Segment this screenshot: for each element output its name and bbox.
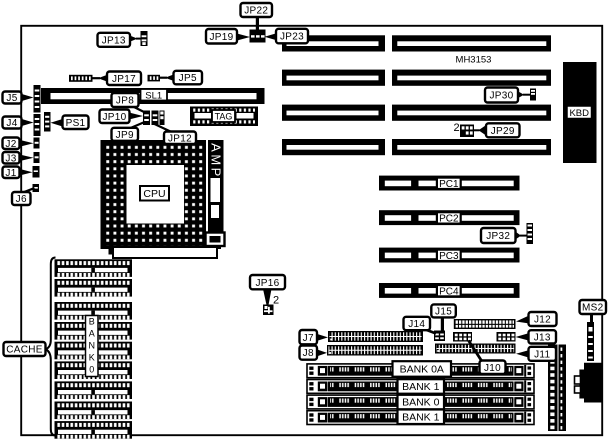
svg-text:0: 0	[89, 365, 94, 375]
svg-text:J10: J10	[484, 363, 501, 374]
svg-text:J5: J5	[6, 93, 17, 104]
svg-text:PS1: PS1	[66, 118, 86, 129]
svg-text:MH3153: MH3153	[456, 55, 492, 66]
svg-text:J14: J14	[408, 319, 425, 330]
svg-text:J2: J2	[5, 139, 16, 150]
svg-text:BANK 0: BANK 0	[402, 397, 440, 409]
svg-text:CPU: CPU	[143, 188, 165, 200]
svg-text:AMP: AMP	[209, 143, 224, 179]
svg-text:J7: J7	[303, 333, 314, 344]
svg-text:PC1: PC1	[439, 179, 459, 190]
svg-text:K: K	[89, 353, 95, 363]
svg-text:JP30: JP30	[490, 91, 514, 102]
svg-text:MS2: MS2	[582, 303, 604, 314]
svg-text:JP17: JP17	[112, 74, 136, 85]
svg-text:JP12: JP12	[168, 133, 192, 144]
svg-text:BANK 1: BANK 1	[402, 411, 440, 423]
svg-text:JP10: JP10	[103, 112, 127, 123]
svg-text:JP16: JP16	[256, 278, 280, 289]
svg-text:J3: J3	[5, 153, 16, 164]
svg-text:JP32: JP32	[486, 231, 510, 242]
svg-text:J12: J12	[534, 315, 551, 326]
svg-text:BANK 0A: BANK 0A	[400, 364, 444, 376]
svg-text:J15: J15	[435, 307, 452, 318]
svg-text:J1: J1	[5, 168, 16, 179]
svg-text:2: 2	[273, 295, 279, 307]
svg-text:2: 2	[453, 122, 459, 134]
svg-text:SL1: SL1	[145, 90, 162, 101]
svg-text:TAG: TAG	[215, 112, 233, 122]
svg-text:JP19: JP19	[210, 32, 234, 43]
svg-text:JP22: JP22	[244, 6, 268, 17]
svg-text:JP29: JP29	[491, 126, 515, 137]
svg-text:BANK 1: BANK 1	[402, 381, 440, 393]
svg-text:J6: J6	[16, 194, 27, 205]
svg-text:PC2: PC2	[439, 214, 459, 225]
svg-text:JP9: JP9	[116, 130, 134, 141]
svg-text:CACHE: CACHE	[6, 345, 43, 356]
svg-text:PC4: PC4	[439, 286, 459, 297]
svg-text:JP23: JP23	[280, 32, 304, 43]
svg-text:J11: J11	[534, 349, 550, 360]
svg-text:B: B	[89, 317, 95, 327]
svg-text:KBD: KBD	[569, 108, 589, 119]
svg-text:PC3: PC3	[439, 251, 459, 262]
svg-text:JP5: JP5	[179, 73, 197, 84]
svg-text:N: N	[89, 341, 96, 351]
svg-text:J8: J8	[303, 348, 314, 359]
svg-text:J13: J13	[534, 332, 551, 343]
svg-text:A: A	[89, 329, 95, 339]
svg-text:JP13: JP13	[102, 35, 126, 46]
svg-text:J4: J4	[6, 118, 17, 129]
svg-text:JP8: JP8	[116, 96, 134, 107]
